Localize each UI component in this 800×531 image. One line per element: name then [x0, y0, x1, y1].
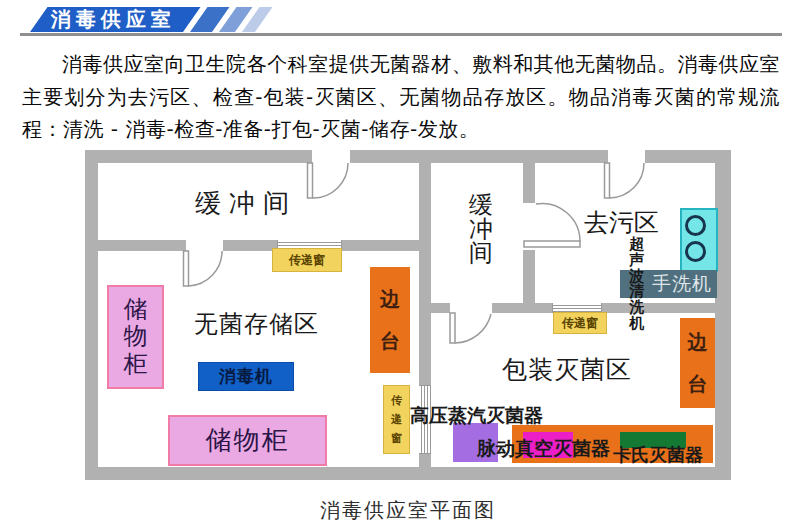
pulse-vacuum-label: 脉动真空灭菌器: [477, 436, 610, 462]
door-leaf-storage: [184, 251, 189, 286]
side-table-right: 边台: [680, 318, 715, 408]
transfer-window-top: 传递窗: [272, 248, 342, 272]
room-decontamination-label: 去污区: [584, 206, 659, 239]
wall-top-b: [350, 150, 608, 163]
sink-basin-1: [685, 215, 706, 236]
wall-packaging-top-a: [431, 303, 450, 313]
room-buffer-left-label: 缓冲间: [195, 186, 297, 221]
cassette-label: 卡氏灭菌器: [613, 443, 703, 467]
wall-decon-vert-b: [523, 250, 535, 303]
wall-buffer-left-b: [223, 240, 277, 251]
cabinet-bottom-label: 储物柜: [206, 423, 290, 458]
side-table-left-label: 边台: [379, 278, 402, 362]
door-arc-packaging: [455, 314, 491, 343]
cabinet-left: 储物柜: [107, 285, 164, 389]
side-table-right-label: 边台: [686, 321, 709, 405]
door-arc-buffer-right: [536, 204, 580, 242]
wall-middle-vert-b: [419, 452, 431, 467]
wall-buffer-left-c: [340, 240, 419, 251]
wall-right: [715, 150, 731, 480]
door-arc-decon-top: [610, 163, 645, 198]
door-leaf-buffer-right: [524, 241, 580, 247]
room-packaging-label: 包装灭菌区: [502, 353, 632, 386]
door-arc-buffer-left-top: [313, 163, 349, 198]
cabinet-bottom: 储物柜: [168, 415, 327, 466]
disinfector-machine: 消毒机: [198, 362, 294, 391]
wall-bottom: [85, 467, 731, 480]
sink-basin-2: [685, 241, 706, 262]
autoclave-label: 高压蒸汽灭菌器: [410, 403, 543, 429]
transfer-window-mid: 传递窗: [383, 385, 410, 454]
door-arc-storage: [189, 251, 223, 286]
disinfector-label: 消毒机: [219, 365, 273, 388]
hand-washer-label: 手洗机: [652, 271, 717, 297]
wall-left: [85, 150, 98, 480]
wall-middle-vert-a: [419, 163, 431, 385]
door-leaf-packaging: [450, 313, 455, 343]
wall-decon-vert-a: [523, 163, 535, 203]
wall-top-a: [85, 150, 312, 163]
floor-plan: 储物柜 消毒机 储物柜 边台 传递窗 传递窗 传递窗 手洗机 超声波清洗机 边台: [0, 0, 800, 531]
transfer-window-top-label: 传递窗: [289, 252, 325, 269]
wall-packaging-top-c: [600, 303, 715, 313]
door-leaf-buffer-left-top: [308, 163, 313, 198]
cabinet-left-label: 储物柜: [122, 296, 150, 379]
side-table-left: 边台: [370, 267, 410, 373]
room-buffer-right-label: 缓冲间: [467, 193, 495, 265]
transfer-window-mid-label: 传递窗: [390, 391, 403, 449]
transfer-window-right-label: 传递窗: [562, 315, 598, 332]
ultrasonic-cleaner-label: 超声波清洗机: [628, 237, 645, 332]
wall-buffer-left-a: [98, 240, 186, 251]
caption: 消毒供应室平面图: [85, 497, 731, 524]
wall-packaging-top-b: [492, 303, 552, 313]
room-sterile-storage-label: 无菌存储区: [194, 308, 319, 340]
door-leaf-decon-top: [605, 163, 610, 198]
transfer-window-right: 传递窗: [553, 312, 607, 334]
page: 消毒供应室 消毒供应室向卫生院各个科室提供无菌器材、敷料和其他无菌物品。消毒供应…: [0, 0, 800, 531]
